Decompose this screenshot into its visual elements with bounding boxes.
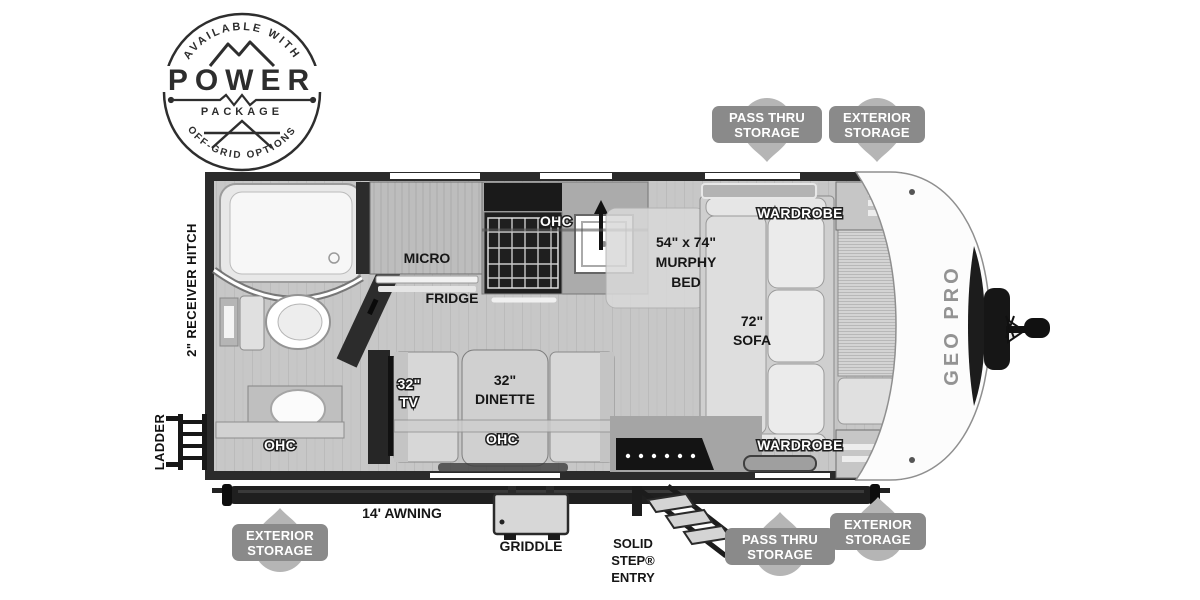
svg-text:SOLID: SOLID xyxy=(613,536,653,551)
tv-wall xyxy=(368,350,390,464)
bath-ohc-shelf xyxy=(216,422,344,438)
fridge-vent-top xyxy=(376,276,478,283)
griddle-icon xyxy=(494,486,568,540)
dinette-table xyxy=(462,350,548,466)
callout-bottom-left-exterior-storage: EXTERIOR STORAGE xyxy=(232,508,328,572)
svg-text:STORAGE: STORAGE xyxy=(747,547,813,562)
svg-text:BED: BED xyxy=(671,274,701,290)
badge-title: POWER xyxy=(168,64,316,97)
kitchen-ohc-label: OHC xyxy=(540,213,572,229)
bathtub-basin xyxy=(230,192,352,274)
callout-top-pass-thru-storage: PASS THRU STORAGE xyxy=(712,98,822,162)
cap-screw-top xyxy=(909,189,915,195)
floorplan-canvas: AVAILABLE WITH POWER PACKAGE OFF-GRID OP… xyxy=(0,0,1200,600)
svg-text:ENTRY: ENTRY xyxy=(611,570,655,585)
entry-threshold xyxy=(744,456,816,471)
badge-subtitle: PACKAGE xyxy=(201,106,283,118)
bath-ohc-label: OHC xyxy=(264,437,296,453)
toilet-seat xyxy=(278,304,322,340)
svg-text:PASS THRU: PASS THRU xyxy=(729,110,805,125)
backsplash xyxy=(484,183,562,211)
svg-text:72": 72" xyxy=(741,313,763,329)
svg-text:SOFA: SOFA xyxy=(733,332,771,348)
svg-text:54" x 74": 54" x 74" xyxy=(656,234,716,250)
wardrobe-top-label: WARDROBE xyxy=(757,205,843,221)
cap-screw-bottom xyxy=(909,457,915,463)
solid-step-label: SOLID STEP® ENTRY xyxy=(611,536,655,585)
svg-text:MURPHY: MURPHY xyxy=(656,254,717,270)
dinette xyxy=(388,350,614,472)
brand-logo: GEO PRO xyxy=(941,264,963,385)
fridge-label: FRIDGE xyxy=(426,290,479,306)
awning-label: 14' AWNING xyxy=(362,505,442,521)
bed-mattress xyxy=(838,230,896,376)
power-package-badge: AVAILABLE WITH POWER PACKAGE OFF-GRID OP… xyxy=(150,14,335,170)
bath-niche-inner xyxy=(224,306,234,338)
wardrobe-bottom-label: WARDROBE xyxy=(757,437,843,453)
callout-bottom-right-exterior-storage: EXTERIOR STORAGE xyxy=(830,497,926,561)
svg-text:STORAGE: STORAGE xyxy=(734,125,800,140)
svg-text:PASS THRU: PASS THRU xyxy=(742,532,818,547)
callout-bottom-pass-thru-storage: PASS THRU STORAGE xyxy=(725,512,835,576)
svg-text:32": 32" xyxy=(397,376,420,392)
micro-label: MICRO xyxy=(404,250,451,266)
svg-text:STORAGE: STORAGE xyxy=(844,125,910,140)
svg-text:32": 32" xyxy=(494,372,516,388)
svg-text:DINETTE: DINETTE xyxy=(475,391,535,407)
ceiling-vent xyxy=(702,184,816,198)
svg-text:EXTERIOR: EXTERIOR xyxy=(843,110,911,125)
mountain-icon xyxy=(210,42,274,66)
toilet-tank xyxy=(240,296,264,350)
svg-text:TV: TV xyxy=(400,394,419,410)
svg-text:EXTERIOR: EXTERIOR xyxy=(844,517,912,532)
rv-floorplan-diagram: AVAILABLE WITH POWER PACKAGE OFF-GRID OP… xyxy=(0,0,1200,600)
badge-bottom-arc-text: OFF-GRID OPTIONS xyxy=(185,124,299,161)
dinette-rug xyxy=(438,463,568,472)
sofa-back-cushions xyxy=(768,216,824,434)
tongue-jack-icon xyxy=(984,288,1050,370)
svg-text:STORAGE: STORAGE xyxy=(845,532,911,547)
dinette-ohc-label: OHC xyxy=(486,431,518,447)
entry-step-well xyxy=(616,438,714,470)
griddle-label: GRIDDLE xyxy=(500,538,563,554)
ladder-icon xyxy=(166,414,207,470)
callout-top-exterior-storage: EXTERIOR STORAGE xyxy=(829,98,925,162)
svg-text:EXTERIOR: EXTERIOR xyxy=(246,528,314,543)
svg-text:STORAGE: STORAGE xyxy=(247,543,313,558)
ladder-label: LADDER xyxy=(152,414,167,471)
receiver-hitch-label: 2" RECEIVER HITCH xyxy=(184,223,199,357)
svg-text:STEP®: STEP® xyxy=(611,553,655,568)
